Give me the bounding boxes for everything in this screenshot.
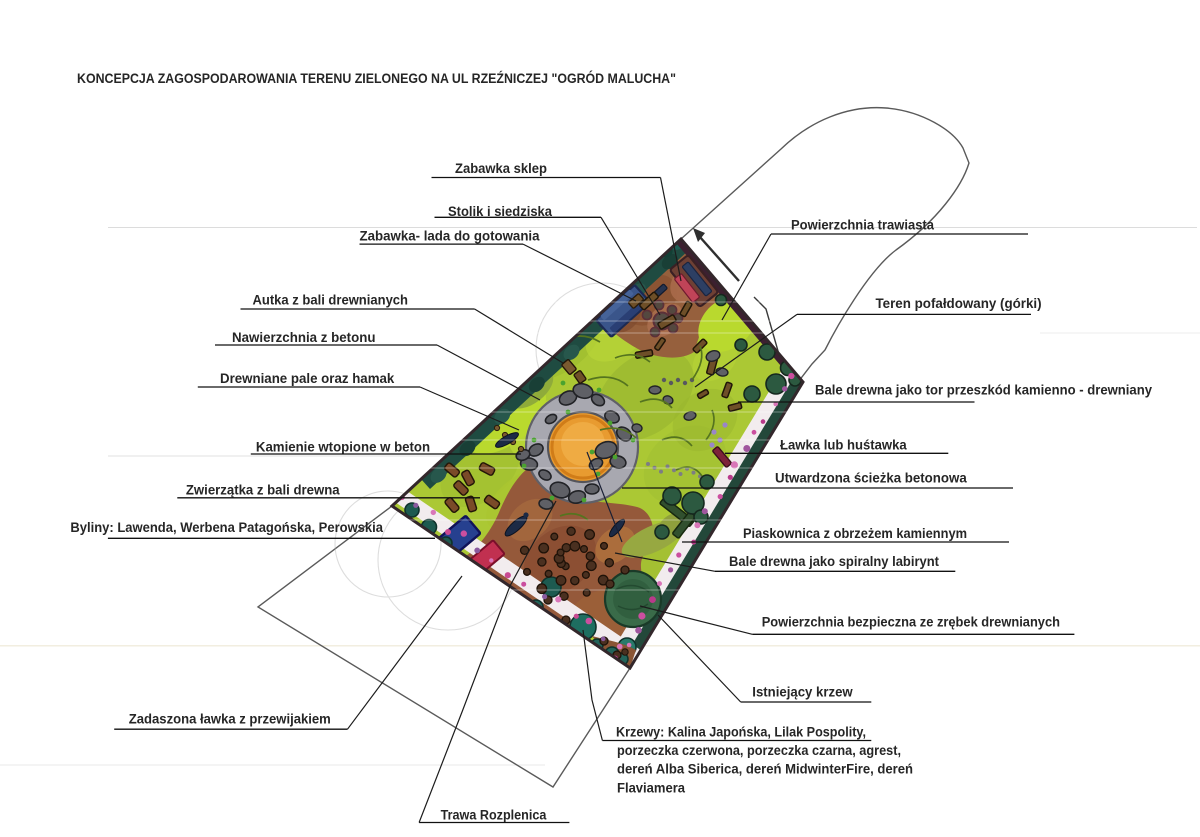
svg-text:Flaviamera: Flaviamera: [617, 780, 685, 795]
svg-text:Byliny: Lawenda, Werbena Patag: Byliny: Lawenda, Werbena Patagońska, Per…: [70, 520, 383, 535]
svg-text:Teren pofałdowany (górki): Teren pofałdowany (górki): [876, 296, 1042, 311]
svg-text:Trawa Rozplenica: Trawa Rozplenica: [441, 808, 547, 823]
svg-text:Krzewy: Kalina Japońska, Lilak: Krzewy: Kalina Japońska, Lilak Pospolity…: [616, 724, 866, 739]
svg-text:Autka z bali drewnianych: Autka z bali drewnianych: [253, 293, 409, 308]
svg-text:Powierzchnia bezpieczna ze zrę: Powierzchnia bezpieczna ze zrębek drewni…: [762, 615, 1060, 630]
svg-text:Kamienie wtopione w beton: Kamienie wtopione w beton: [256, 440, 430, 455]
svg-text:Bale drewna jako spiralny labi: Bale drewna jako spiralny labirynt: [729, 554, 939, 569]
svg-text:Piaskownica z obrzeżem kamienn: Piaskownica z obrzeżem kamiennym: [743, 526, 967, 541]
svg-text:Ławka lub huśtawka: Ławka lub huśtawka: [780, 437, 907, 452]
svg-text:KONCEPCJA ZAGOSPODAROWANIA TER: KONCEPCJA ZAGOSPODAROWANIA TERENU ZIELON…: [77, 71, 676, 86]
svg-text:Powierzchnia trawiasta: Powierzchnia trawiasta: [791, 218, 934, 233]
svg-text:Bale drewna jako tor przeszkód: Bale drewna jako tor przeszkód kamienno …: [815, 383, 1152, 398]
svg-text:Utwardzona ścieżka betonowa: Utwardzona ścieżka betonowa: [775, 471, 967, 486]
svg-text:porzeczka czerwona, porzeczka: porzeczka czerwona, porzeczka czarna, ag…: [617, 743, 901, 758]
svg-text:Nawierzchnia z betonu: Nawierzchnia z betonu: [232, 330, 376, 345]
svg-text:dereń Alba Siberica, dereń Mid: dereń Alba Siberica, dereń MidwinterFire…: [617, 762, 913, 777]
svg-text:Zadaszona ławka z przewijakiem: Zadaszona ławka z przewijakiem: [129, 712, 331, 727]
svg-text:Zabawka- lada do gotowania: Zabawka- lada do gotowania: [360, 228, 540, 243]
svg-text:Istniejący krzew: Istniejący krzew: [752, 685, 853, 700]
svg-text:Zabawka sklep: Zabawka sklep: [455, 161, 547, 176]
svg-text:Zwierzątka z bali drewna: Zwierzątka z bali drewna: [186, 482, 340, 497]
svg-text:Drewniane pale oraz hamak: Drewniane pale oraz hamak: [220, 371, 395, 386]
